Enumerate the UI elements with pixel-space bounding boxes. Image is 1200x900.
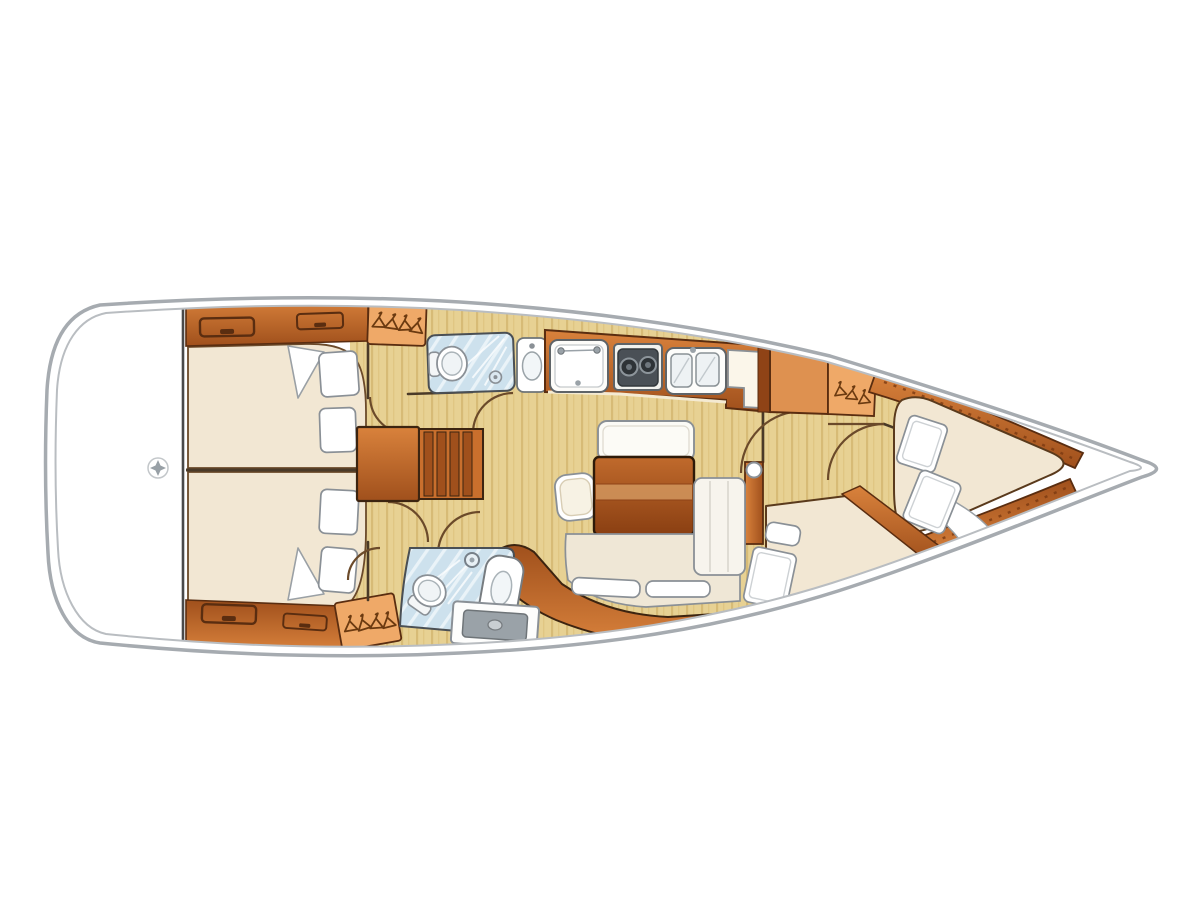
door-knob: [747, 463, 762, 478]
pillow: [319, 351, 360, 398]
pillow: [318, 547, 358, 594]
galley-sink-unit: [550, 340, 608, 392]
cushion-strip: [646, 581, 710, 597]
interior: [148, 297, 1083, 660]
salon-table: [594, 457, 694, 535]
companionway-landing: [357, 427, 419, 501]
salon-bench: [598, 421, 694, 461]
hanging-locker-bottom: [334, 593, 401, 651]
cushion-strip: [572, 577, 641, 598]
floorplan-svg: [0, 0, 1200, 900]
pillow: [319, 489, 359, 535]
chaise-cushions: [694, 478, 745, 575]
stove-2-burners: [614, 344, 662, 390]
head-top: [427, 332, 515, 393]
double-sink: [666, 347, 726, 394]
salon-stool: [554, 472, 599, 522]
companionway-stairs: [419, 429, 483, 499]
compass-rose-icon: [148, 458, 168, 478]
washbasin-top: [517, 338, 547, 392]
yacht-floorplan-canvas: [0, 0, 1200, 900]
galley-divider: [758, 346, 770, 412]
pillow: [319, 407, 357, 452]
